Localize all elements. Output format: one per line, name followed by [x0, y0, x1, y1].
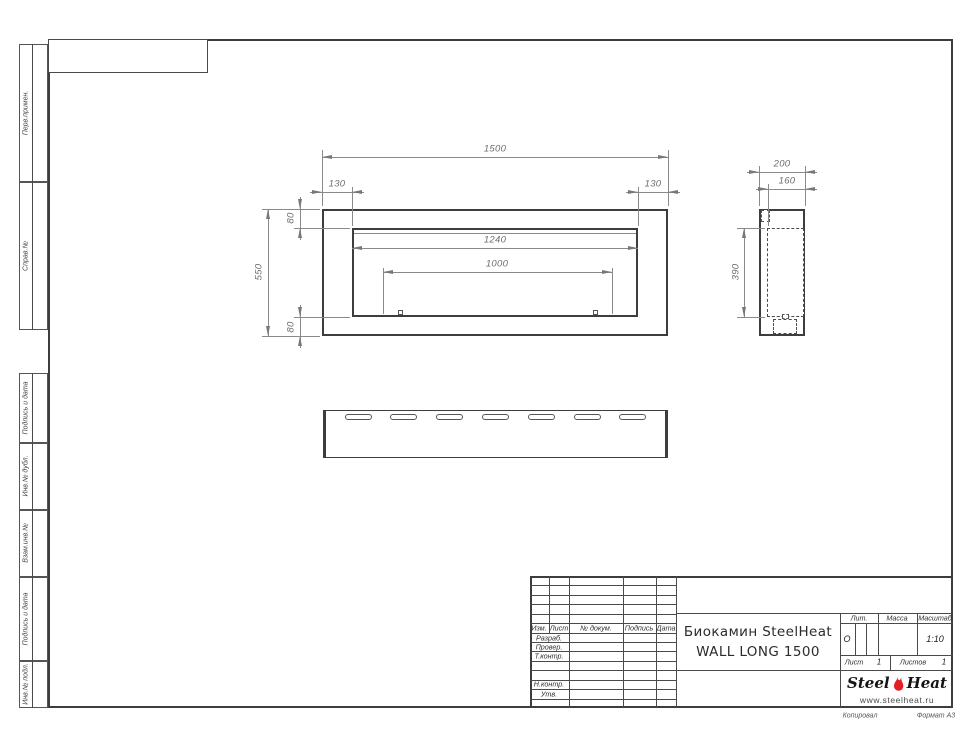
dim-arrow — [298, 307, 302, 317]
dim-arrow — [266, 209, 270, 219]
dim-arrow — [805, 187, 815, 191]
grid-line — [878, 613, 879, 655]
dim-arrow — [312, 190, 322, 194]
dim-arrow — [602, 270, 612, 274]
dimension-line — [744, 228, 745, 317]
margin-column-divider — [32, 44, 33, 182]
vent-slot — [528, 414, 555, 420]
dim-arrow — [352, 190, 362, 194]
dim-arrow — [658, 155, 668, 159]
col-docnum: № докум. — [580, 624, 612, 633]
dim-burner-width: 1000 — [486, 259, 508, 270]
dim-arrow — [298, 228, 302, 238]
dim-front-offset-left: 130 — [329, 179, 346, 190]
dim-arrow — [628, 190, 638, 194]
dim-arrow — [298, 336, 302, 346]
margin-column-divider — [32, 373, 33, 443]
grid-line — [530, 585, 676, 586]
grid-line — [866, 623, 867, 655]
side-view-burner-tab — [782, 314, 789, 319]
vent-slot — [390, 414, 417, 420]
margin-column-label: Инв.№ подл. — [23, 663, 30, 705]
extension-line — [383, 268, 384, 314]
vent-slot — [574, 414, 601, 420]
margin-column-label: Подпись и дата — [23, 593, 30, 646]
grid-line — [530, 661, 676, 662]
dimension-line — [268, 209, 269, 336]
col-list: Лист — [550, 624, 569, 633]
dim-arrow — [298, 199, 302, 209]
grid-line — [530, 604, 676, 605]
drawing-sheet: Перв.примен. Справ.№ Подпись и дата Инв.… — [0, 0, 970, 749]
dim-front-bottom: 80 — [286, 321, 297, 332]
extension-line — [262, 336, 320, 337]
col-data: Дата — [657, 624, 676, 633]
extension-line — [262, 209, 320, 210]
doc-title-line1: Биокамин SteelHeat — [684, 624, 832, 640]
extension-line — [737, 317, 765, 318]
margin-column-divider — [32, 577, 33, 661]
dim-arrow — [742, 307, 746, 317]
dim-arrow — [742, 228, 746, 238]
flame-icon — [892, 675, 905, 692]
dim-arrow — [628, 246, 638, 250]
dim-side-inner-depth: 160 — [779, 176, 796, 187]
grid-line — [840, 655, 953, 656]
grid-line — [840, 623, 953, 624]
lit-label: Лит. — [851, 614, 868, 623]
side-view-burner-box — [773, 319, 797, 334]
grid-line — [676, 670, 953, 671]
margin-column-label: Перв.примен. — [23, 91, 30, 136]
lit-value: О — [843, 634, 850, 644]
row-utv: Утв. — [541, 690, 557, 699]
vent-slot — [619, 414, 646, 420]
footer-copied-by: Копировал — [843, 713, 878, 720]
row-razrab: Разраб. — [536, 634, 562, 643]
grid-line — [530, 699, 676, 700]
grid-line — [530, 595, 676, 596]
sheet-label: Лист — [845, 658, 864, 667]
sheet-value: 1 — [877, 658, 881, 667]
dimension-line — [322, 157, 668, 158]
dim-side-inner-height: 390 — [731, 264, 742, 281]
margin-column-label: Подпись и дата — [23, 382, 30, 435]
dim-front-height: 550 — [254, 264, 265, 281]
dim-arrow — [749, 170, 759, 174]
sheets-value: 1 — [942, 658, 946, 667]
extension-line — [294, 317, 350, 318]
extension-line — [612, 268, 613, 314]
doc-title-line2: WALL LONG 1500 — [696, 644, 820, 660]
mass-label: Масса — [886, 614, 907, 623]
dimension-line — [352, 248, 638, 249]
dim-front-width: 1500 — [484, 144, 506, 155]
dim-opening-width: 1240 — [484, 235, 506, 246]
steelheat-logo: Steel Heat — [841, 672, 953, 694]
dim-arrow — [383, 270, 393, 274]
scale-label: Масштаб — [918, 614, 952, 623]
footer-format: Формат А3 — [917, 713, 955, 720]
logo-word-heat: Heat — [907, 674, 947, 692]
dim-arrow — [805, 170, 815, 174]
extension-line — [668, 150, 669, 206]
side-view-hidden-body — [767, 228, 804, 317]
margin-column-divider — [32, 661, 33, 708]
burner-notch — [398, 310, 403, 315]
row-nkontr: Н.контр. — [534, 680, 564, 689]
margin-column-divider — [32, 510, 33, 577]
dim-arrow — [322, 155, 332, 159]
scale-value: 1:10 — [926, 634, 944, 644]
logo-website: www.steelheat.ru — [860, 695, 934, 705]
vent-slot — [482, 414, 509, 420]
top-left-stamp-box — [48, 39, 208, 73]
grid-line — [676, 576, 677, 708]
grid-line — [855, 623, 856, 655]
dim-arrow — [668, 190, 678, 194]
row-tkontr: Т.контр. — [535, 652, 564, 661]
col-podpis: Подпись — [625, 624, 654, 633]
dimension-line — [383, 272, 612, 273]
grid-line — [890, 655, 891, 670]
row-prover: Провер. — [536, 643, 563, 652]
dim-side-depth: 200 — [774, 159, 791, 170]
burner-notch — [593, 310, 598, 315]
extension-line — [768, 184, 769, 226]
vent-slot — [436, 414, 463, 420]
extension-line — [294, 228, 350, 229]
col-izm: Изм. — [531, 624, 546, 633]
grid-line — [676, 613, 953, 614]
sheets-label: Листов — [900, 658, 926, 667]
grid-line — [530, 670, 676, 671]
margin-column-label: Взам.инв.№ — [23, 523, 30, 562]
margin-column-divider — [32, 443, 33, 510]
dim-front-offset-right: 130 — [645, 179, 662, 190]
dim-arrow — [266, 326, 270, 336]
margin-column-label: Инв.№ дубл. — [23, 455, 30, 496]
dim-arrow — [758, 187, 768, 191]
vent-slot — [345, 414, 372, 420]
dim-arrow — [352, 246, 362, 250]
dim-front-top: 80 — [286, 212, 297, 223]
margin-column-label: Справ.№ — [23, 241, 30, 271]
margin-column-divider — [32, 182, 33, 330]
grid-line — [530, 614, 676, 615]
logo-word-steel: Steel — [847, 674, 890, 692]
